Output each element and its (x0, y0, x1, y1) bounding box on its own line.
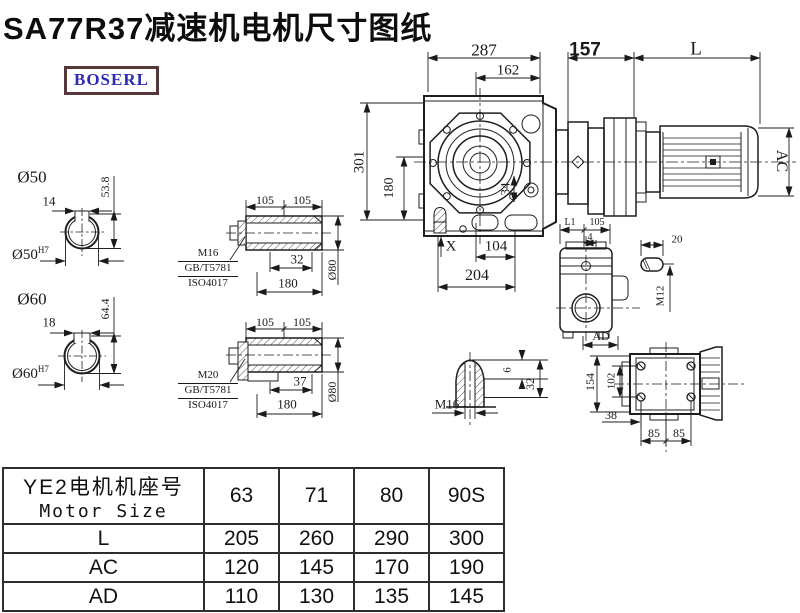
size-63: 63 (204, 468, 279, 524)
row-AD-label: AD (3, 582, 204, 611)
dim-a-32: 32 (291, 253, 304, 266)
drawing-lines (38, 52, 796, 452)
bore-50-tolerance: H7 (38, 245, 49, 255)
bolt-b-iso: ISO4017 (188, 399, 228, 411)
label-M12: M12 (656, 286, 667, 307)
label-dia50: Ø50 (17, 169, 46, 186)
brand-logo: BOSERL (64, 66, 159, 95)
dim-38: 38 (605, 409, 617, 421)
label-bore-60: Ø60H7 (12, 365, 49, 382)
dim-key-14: 14 (43, 195, 56, 208)
dim-a-180: 180 (278, 277, 298, 290)
table-row-AD: AD 110 130 135 145 (3, 582, 504, 611)
row-AC-v1: 145 (279, 553, 354, 582)
bolt-b-standard: GB/T5781 (178, 384, 238, 399)
dim-b-105-right: 105 (293, 316, 311, 328)
page: { "title": "SA77R37减速机电机尺寸图纸", "logo": {… (0, 0, 800, 613)
size-71: 71 (279, 468, 354, 524)
dim-b-105-left: 105 (256, 316, 274, 328)
bolt-a-thread: M16 (178, 247, 238, 262)
dim-157: 157 (569, 41, 601, 60)
dim-b-dia80: Ø80 (326, 382, 338, 403)
dim-4: 4 (588, 233, 593, 243)
dim-AC: AC (773, 150, 789, 172)
dim-b-37: 37 (294, 375, 307, 388)
flange-view (590, 342, 744, 452)
row-AC-v2: 170 (354, 553, 429, 582)
dim-162: 162 (497, 64, 520, 79)
dim-301: 301 (353, 151, 368, 174)
motor-size-table: YE2电机机座号 Motor Size 63 71 80 90S L 205 2… (2, 467, 505, 612)
table-row-AC: AC 120 145 170 190 (3, 553, 504, 582)
page-title: SA77R37减速机电机尺寸图纸 (3, 3, 432, 48)
dim-6: 6 (503, 367, 514, 373)
label-dia60: Ø60 (17, 291, 46, 308)
dim-L: L (690, 40, 702, 59)
row-L-v0: 205 (204, 524, 279, 553)
dim-a-dia80: Ø80 (326, 260, 338, 281)
size-80: 80 (354, 468, 429, 524)
row-AC-v0: 120 (204, 553, 279, 582)
dim-a-105-left: 105 (256, 194, 274, 206)
bolt-spec-b: M20 GB/T5781 ISO4017 (178, 369, 238, 412)
dim-180: 180 (383, 178, 397, 199)
row-AC-v3: 190 (429, 553, 504, 582)
table-row-L: L 205 260 290 300 (3, 524, 504, 553)
dim-85-left: 85 (648, 427, 660, 439)
dim-rear-105: 105 (590, 218, 605, 228)
main-view-adapter (556, 118, 646, 216)
row-L-label: L (3, 524, 204, 553)
dim-X: X (446, 240, 457, 255)
row-AD-v0: 110 (204, 582, 279, 611)
row-L-v3: 300 (429, 524, 504, 553)
row-AD-v2: 135 (354, 582, 429, 611)
dim-53-8: 53.8 (99, 177, 111, 198)
row-AD-v1: 130 (279, 582, 354, 611)
dim-20: 20 (672, 235, 683, 246)
row-AC-label: AC (3, 553, 204, 582)
dim-102: 102 (607, 373, 618, 390)
dim-key-18: 18 (43, 316, 56, 329)
dim-85-right: 85 (673, 427, 685, 439)
bolt-b-thread: M20 (178, 369, 238, 384)
dim-AD: AD (592, 330, 609, 342)
label-M16: M16 (435, 398, 460, 411)
table-header-row: YE2电机机座号 Motor Size 63 71 80 90S (3, 468, 504, 524)
bolt-a-iso: ISO4017 (188, 277, 228, 289)
dim-154: 154 (584, 373, 596, 391)
dim-287: 287 (471, 42, 497, 59)
bolt-spec-a: M16 GB/T5781 ISO4017 (178, 247, 238, 290)
main-view-gearbox (419, 96, 556, 236)
bolt-a-standard: GB/T5781 (178, 262, 238, 277)
dim-104: 104 (485, 240, 508, 255)
dim-a-105-right: 105 (293, 194, 311, 206)
dim-204: 204 (465, 268, 489, 284)
bore-60-tolerance: H7 (38, 364, 49, 374)
size-90S: 90S (429, 468, 504, 524)
dim-64-4: 64.4 (99, 299, 111, 320)
dim-b-180: 180 (277, 398, 297, 411)
label-bore-50: Ø50H7 (12, 246, 49, 263)
table-header-cn: YE2电机机座号 (4, 471, 203, 501)
centerlines-main (414, 88, 796, 244)
dim-L1: L1 (564, 218, 575, 228)
dim-34: 34 (499, 183, 512, 196)
main-view-dimensions (360, 52, 794, 292)
row-L-v1: 260 (279, 524, 354, 553)
dim-plug-32: 32 (524, 378, 536, 390)
bore-60-text: Ø60 (12, 366, 38, 382)
table-header-cell: YE2电机机座号 Motor Size (3, 468, 204, 524)
table-header-en: Motor Size (4, 501, 203, 522)
bore-50-text: Ø50 (12, 247, 38, 263)
row-AD-v3: 145 (429, 582, 504, 611)
row-L-v2: 290 (354, 524, 429, 553)
